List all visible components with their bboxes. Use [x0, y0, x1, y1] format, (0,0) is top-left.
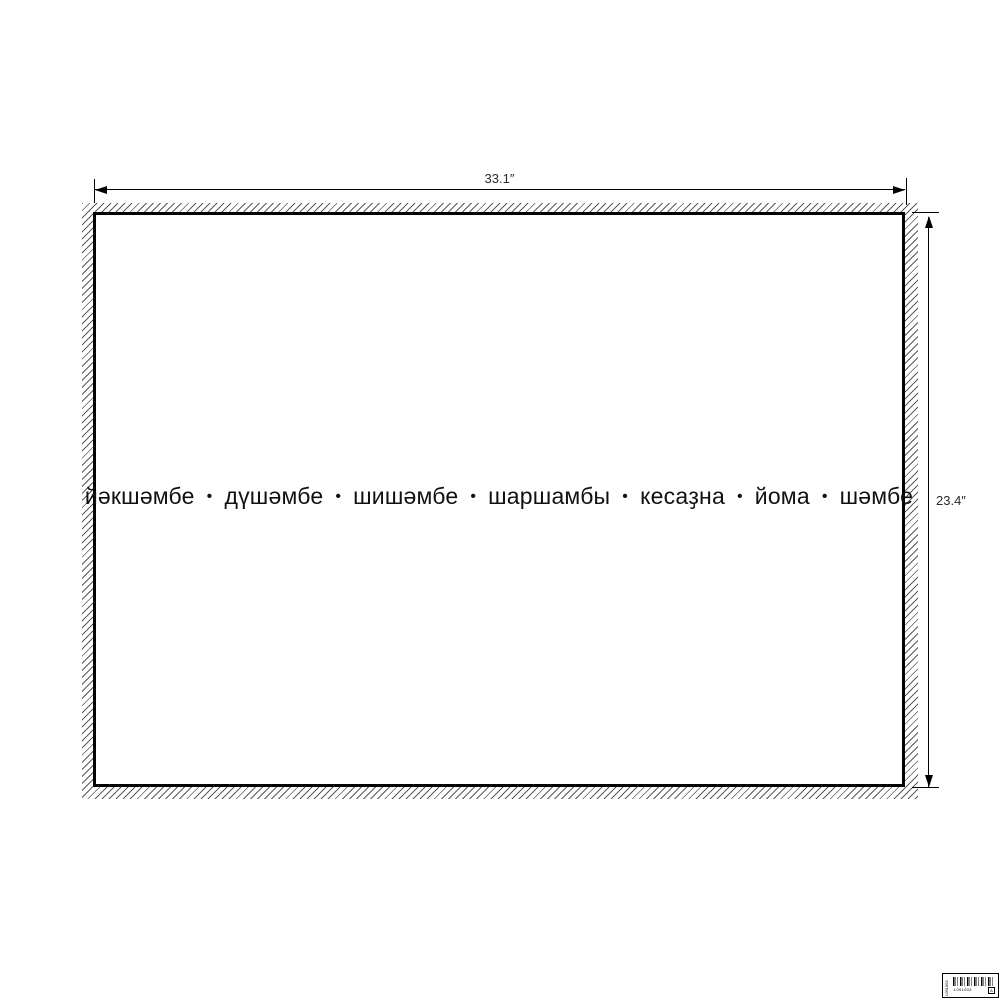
- arrow-right-icon: [893, 186, 905, 194]
- width-extension-line-right: [906, 178, 907, 205]
- arrow-up-icon: [925, 216, 933, 228]
- width-dimension-label: 33.1″: [94, 172, 905, 185]
- bullet-separator-icon: •: [737, 489, 743, 505]
- poster-mockup-canvas: L091003 L091003 A йәкшәмбе • дүшәмбе • ш…: [0, 0, 1000, 1000]
- weekday-2: дүшәмбе: [224, 483, 323, 510]
- arrow-down-icon: [925, 775, 933, 787]
- weekday-6: йома: [755, 483, 810, 510]
- bullet-separator-icon: •: [622, 489, 628, 505]
- certification-mark-icon: A: [988, 987, 995, 994]
- weekday-3: шишәмбе: [353, 483, 458, 510]
- bullet-separator-icon: •: [335, 489, 341, 505]
- height-dimension-label: 23.4″: [936, 494, 966, 507]
- barcode-icon: [953, 977, 995, 986]
- bullet-separator-icon: •: [470, 489, 476, 505]
- width-dimension-line: [94, 189, 905, 190]
- arrow-left-icon: [95, 186, 107, 194]
- bullet-separator-icon: •: [822, 489, 828, 505]
- height-dimension-line: [928, 217, 929, 787]
- weekday-4: шаршамбы: [488, 483, 610, 510]
- barcode-sticker: L091003 L091003 A: [942, 973, 999, 998]
- height-extension-line-top: [912, 212, 939, 213]
- weekday-1: йәкшәмбе: [85, 483, 195, 510]
- barcode-code-text: L091003: [954, 988, 972, 992]
- bullet-separator-icon: •: [207, 489, 213, 505]
- weekdays-line: йәкшәмбе • дүшәмбе • шишәмбе • шаршамбы …: [93, 479, 905, 513]
- height-extension-line-bottom: [912, 787, 939, 788]
- weekday-7: шәмбе: [840, 483, 914, 510]
- weekday-5: кесаҙна: [640, 483, 725, 510]
- barcode-vertical-text: L091003: [945, 976, 949, 996]
